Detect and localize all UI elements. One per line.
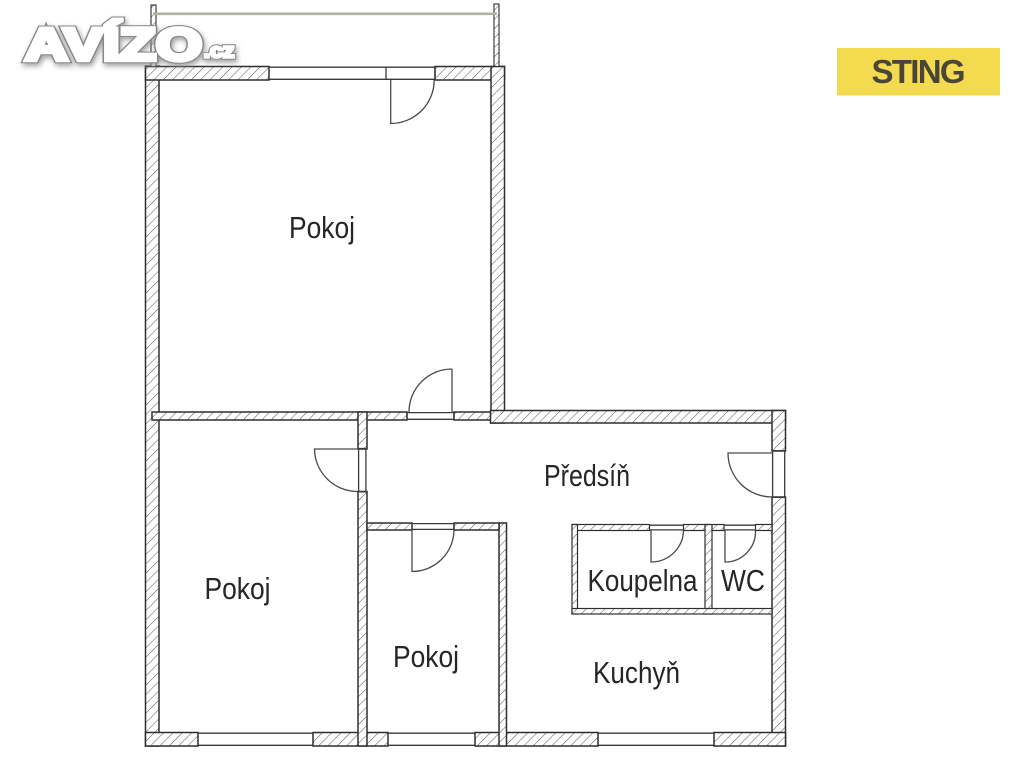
svg-text:WC: WC [721, 564, 765, 598]
svg-text:Kuchyň: Kuchyň [593, 656, 680, 690]
svg-text:Pokoj: Pokoj [205, 572, 271, 606]
svg-text:AVÍZO: AVÍZO [25, 19, 202, 70]
svg-text:Pokoj: Pokoj [289, 211, 355, 245]
svg-text:.cz: .cz [204, 41, 235, 63]
svg-text:Pokoj: Pokoj [393, 640, 459, 674]
svg-text:Koupelna: Koupelna [588, 564, 698, 598]
svg-text:STING: STING [872, 53, 966, 90]
svg-text:Předsíň: Předsíň [544, 459, 630, 493]
